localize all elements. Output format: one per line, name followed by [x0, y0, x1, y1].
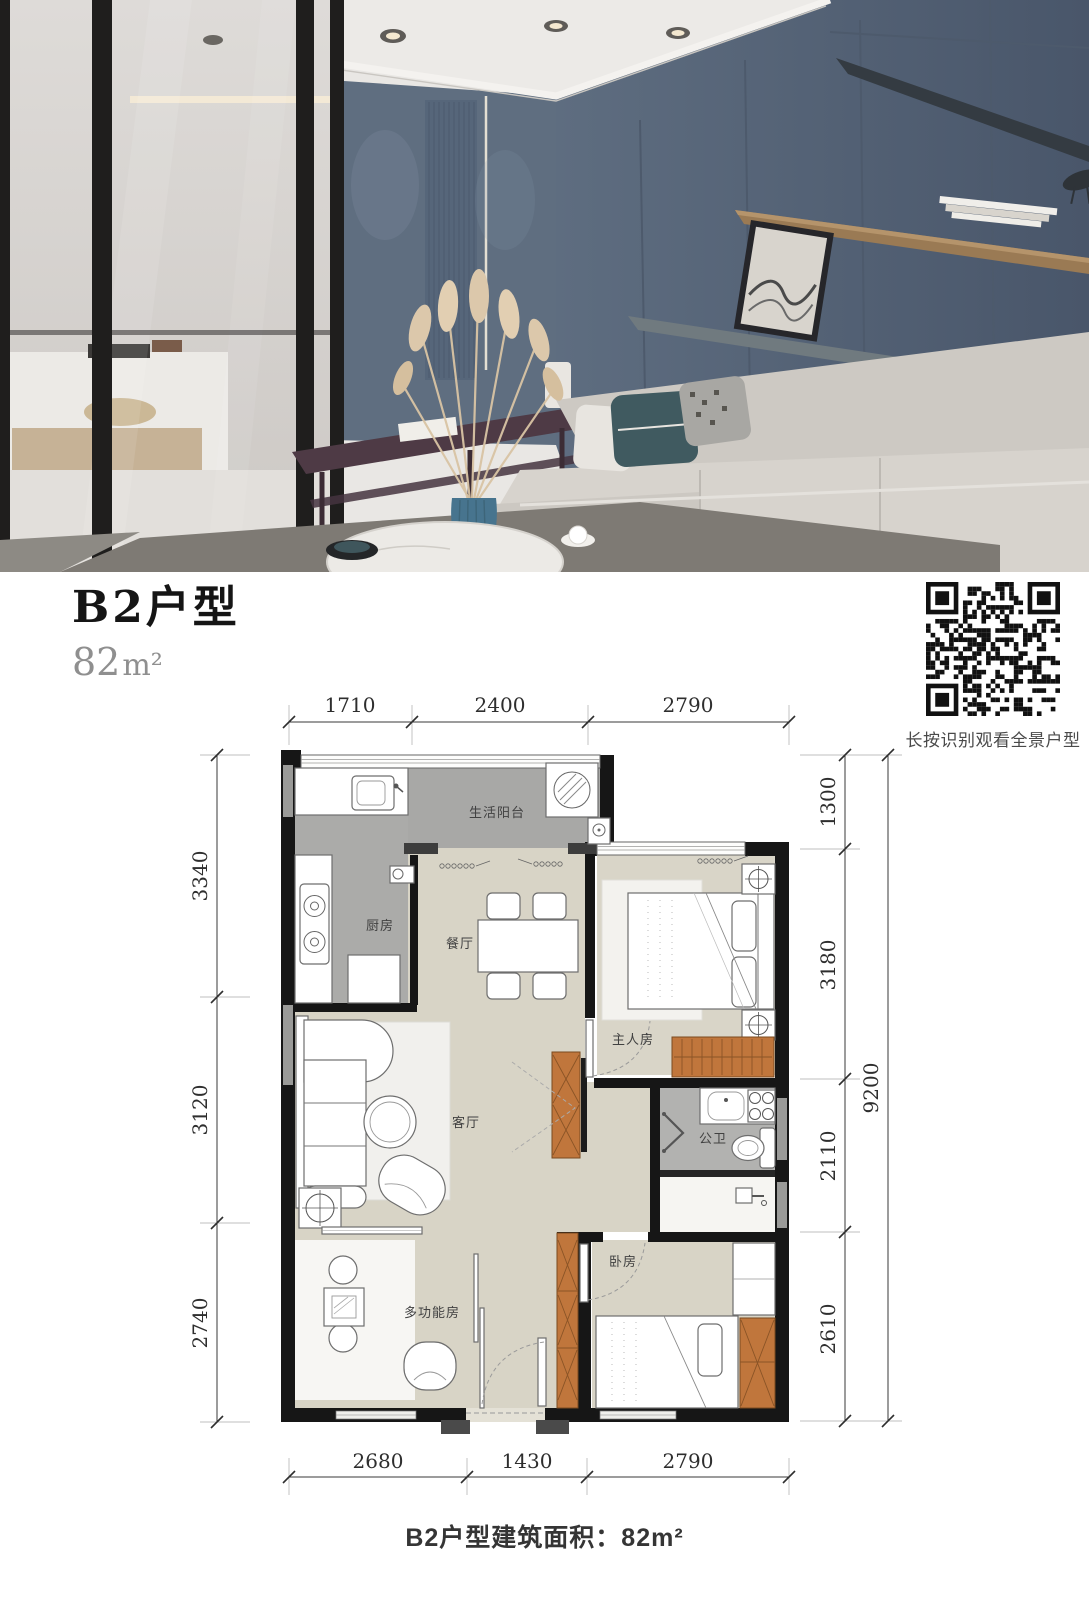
houndstooth-pillow	[678, 375, 752, 448]
framed-artwork	[734, 220, 834, 342]
master-door-leaf	[586, 1020, 593, 1077]
dim-right-1: 3180	[816, 940, 840, 991]
plan-area-unit: m²	[122, 648, 162, 683]
stool-top	[329, 1256, 357, 1284]
dim-top-0: 1710	[325, 693, 376, 717]
gas-meter	[390, 866, 414, 883]
dim-left-2: 2740	[188, 1298, 212, 1349]
hero-photo-art	[0, 0, 1089, 572]
floor-plan: 1710 2400 2790 2680 1430 2790 3340 3120 …	[170, 670, 940, 1520]
shower-basin	[736, 1188, 752, 1203]
master-bed	[628, 893, 774, 1009]
tea-table	[324, 1288, 364, 1326]
dim-right-0: 1300	[816, 777, 840, 828]
dim-right-2: 2110	[816, 1131, 840, 1182]
dim-top-1: 2400	[475, 693, 526, 717]
room-label-dining: 餐厅	[446, 936, 474, 951]
sliding-panel-1	[474, 1254, 478, 1342]
room-label-balcony: 生活阳台	[469, 805, 525, 820]
room-label-multi: 多功能房	[404, 1305, 460, 1320]
glass-partition	[0, 0, 344, 572]
plan-area-value: 82	[72, 640, 120, 684]
dim-bottom-0: 2680	[353, 1449, 404, 1473]
room-label-kitchen: 厨房	[366, 918, 394, 933]
dim-left-1: 3120	[188, 1085, 212, 1136]
entry-door-leaf	[538, 1338, 546, 1406]
qr-code[interactable]	[926, 582, 1060, 716]
toilet-bowl	[732, 1136, 764, 1161]
room-label-living: 客厅	[452, 1115, 480, 1130]
plan-title: B2户型	[72, 584, 240, 632]
room-label-bedroom: 卧房	[609, 1254, 637, 1269]
tv-console	[552, 1052, 580, 1158]
hero-photo	[0, 0, 1089, 572]
dim-right-3: 2610	[816, 1304, 840, 1355]
room-label-bathroom: 公卫	[699, 1131, 727, 1146]
dim-right-total: 9200	[859, 1063, 883, 1114]
dim-top-2: 2790	[663, 693, 714, 717]
armchair-multi	[404, 1342, 456, 1390]
bedroom-door-leaf	[580, 1244, 588, 1302]
dim-bottom-2: 2790	[663, 1449, 714, 1473]
room-label-master: 主人房	[612, 1032, 654, 1047]
dim-bottom-1: 1430	[502, 1449, 553, 1473]
flyer-page: B2户型 82m² 长按识别观看全景户型	[0, 0, 1089, 1600]
dining-table	[478, 920, 578, 972]
floor-shower	[660, 1177, 775, 1232]
stool-bottom	[329, 1324, 357, 1352]
kitchen-cabinet	[348, 955, 400, 1003]
dim-left-0: 3340	[188, 851, 212, 902]
coffee-table-plan	[364, 1096, 416, 1148]
sliding-panel-2	[480, 1308, 484, 1408]
footer-caption: B2户型建筑面积：82m²	[0, 1518, 1089, 1554]
